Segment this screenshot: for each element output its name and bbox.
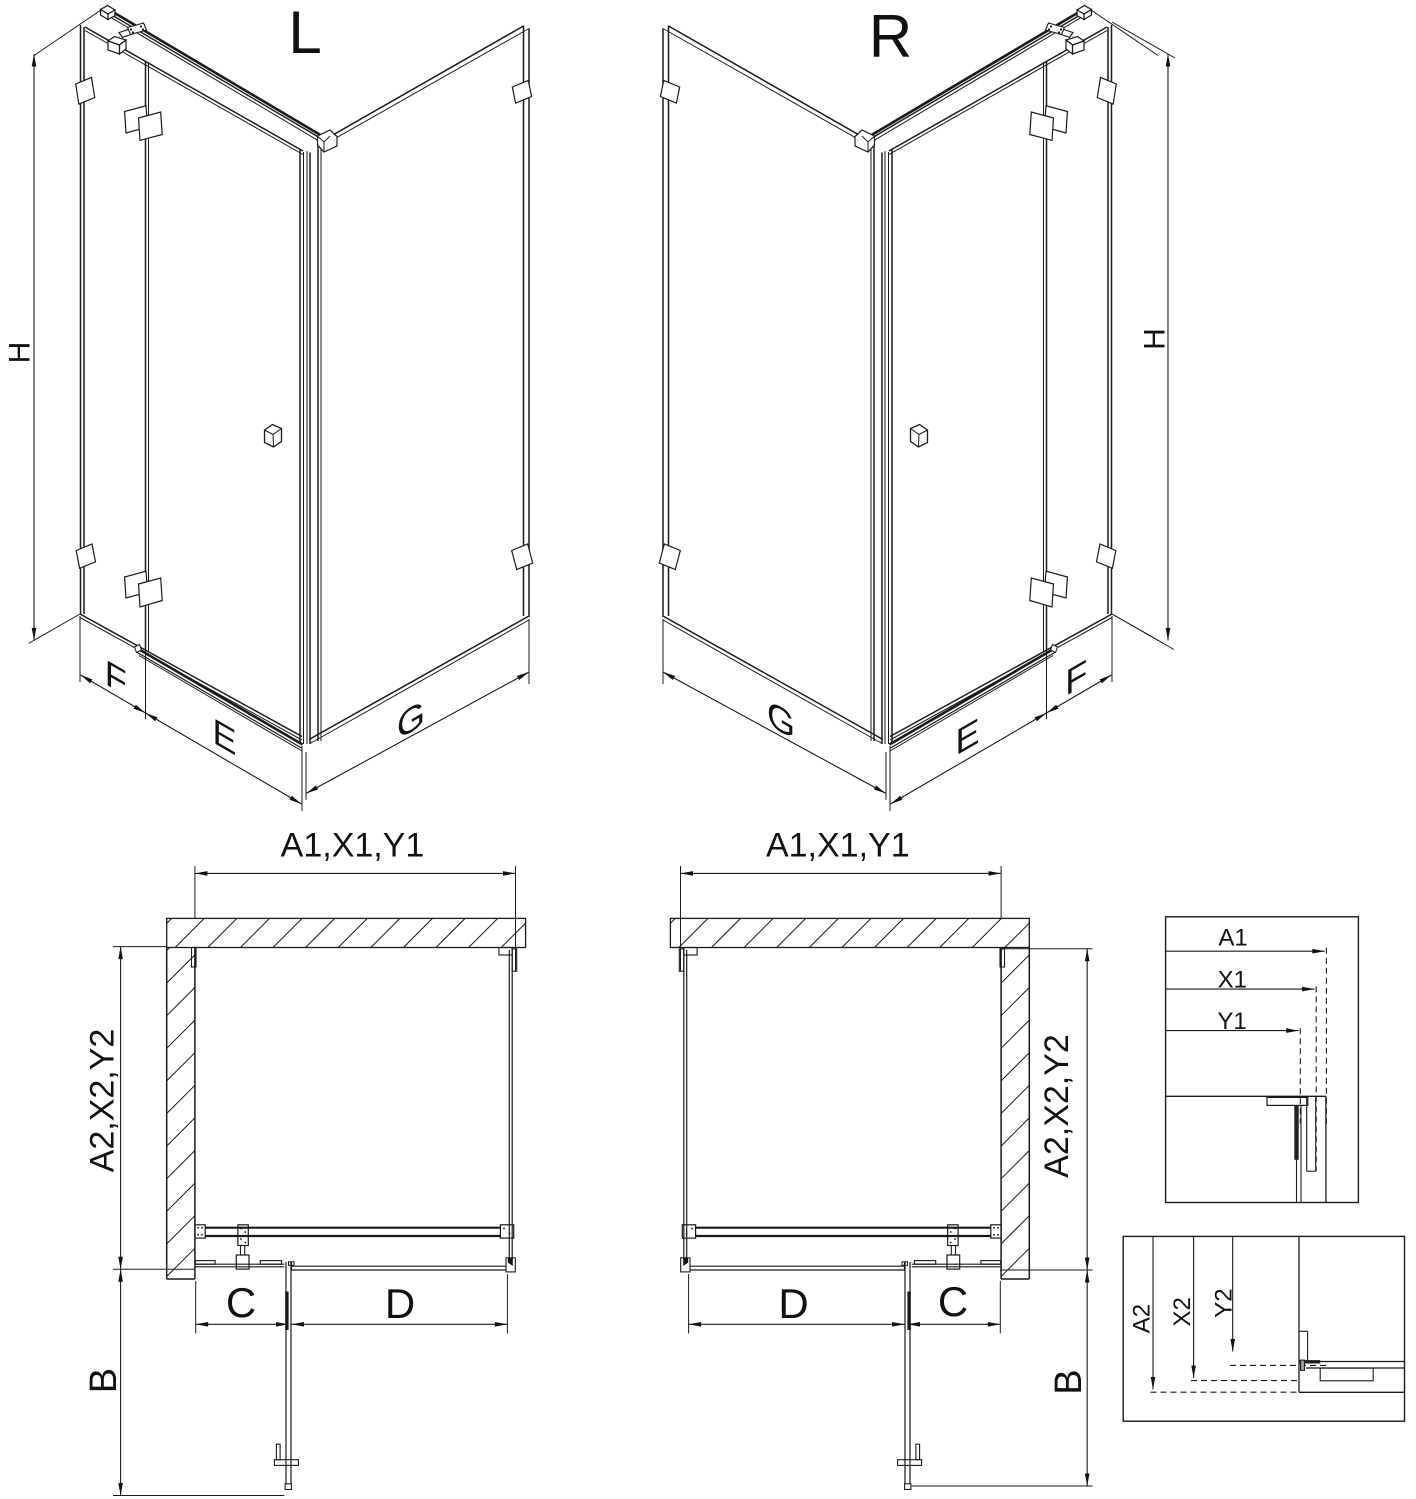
svg-text:X2: X2 bbox=[1169, 1297, 1196, 1326]
svg-text:B: B bbox=[1048, 1369, 1090, 1394]
svg-text:A2,X2,Y2: A2,X2,Y2 bbox=[1038, 1034, 1076, 1178]
svg-text:H: H bbox=[4, 342, 37, 364]
svg-text:A1,X1,Y1: A1,X1,Y1 bbox=[766, 827, 910, 865]
svg-text:L: L bbox=[288, 0, 321, 66]
svg-text:B: B bbox=[83, 1368, 125, 1393]
svg-text:H: H bbox=[1138, 328, 1171, 350]
svg-text:D: D bbox=[385, 1280, 415, 1327]
svg-text:R: R bbox=[869, 3, 912, 70]
svg-text:Y1: Y1 bbox=[1217, 1008, 1246, 1035]
svg-text:Y2: Y2 bbox=[1210, 1288, 1237, 1317]
svg-text:A1,X1,Y1: A1,X1,Y1 bbox=[281, 827, 425, 865]
svg-text:C: C bbox=[226, 1279, 256, 1326]
svg-text:C: C bbox=[938, 1278, 968, 1325]
svg-text:A2: A2 bbox=[1129, 1304, 1156, 1333]
svg-text:A2,X2,Y2: A2,X2,Y2 bbox=[84, 1029, 122, 1173]
svg-text:X1: X1 bbox=[1218, 967, 1247, 994]
svg-text:A1: A1 bbox=[1218, 925, 1247, 952]
svg-text:D: D bbox=[778, 1280, 808, 1327]
